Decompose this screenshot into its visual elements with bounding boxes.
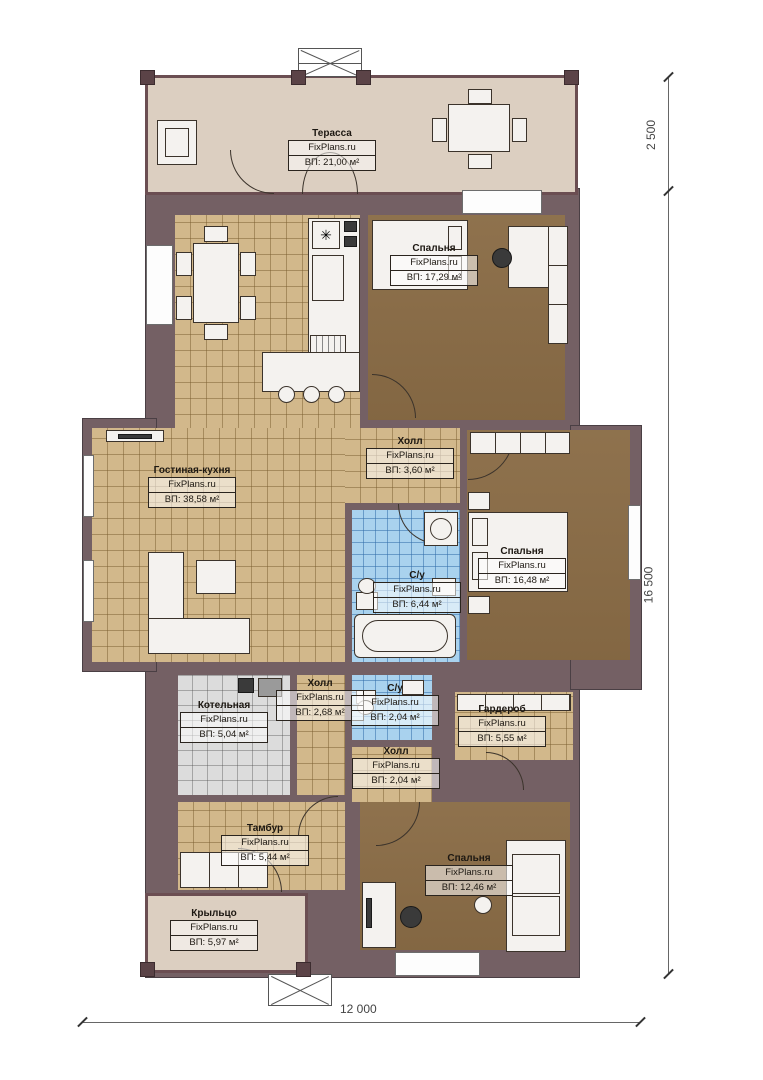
closet-row — [470, 432, 570, 454]
terrace-grill-inner — [165, 128, 189, 157]
terrace-post — [564, 70, 579, 85]
floor-plan: ✳ Терасса FixPl — [0, 0, 763, 1080]
dimension-label-house-width: 12 000 — [340, 1002, 377, 1016]
terrace-chair — [468, 89, 492, 104]
bar-stool — [278, 386, 295, 403]
room-label-porch: Крыльцо FixPlans.ru ВП: 5,97 м² — [170, 908, 258, 951]
side-table — [474, 896, 492, 914]
porch-steps-icon — [268, 974, 332, 1006]
dimension-label-terrace-depth: 2 500 — [644, 120, 658, 150]
washing-machine-door — [430, 518, 452, 540]
bar-stool — [303, 386, 320, 403]
boiler-unit — [238, 678, 254, 693]
terrace-chair — [512, 118, 527, 142]
window — [146, 245, 173, 325]
kitchen-sink — [312, 255, 344, 301]
kitchen-dining-table — [193, 243, 239, 323]
sofa-cushion — [512, 854, 560, 894]
kitchen-chair — [176, 296, 192, 320]
office-chair — [400, 906, 422, 928]
window — [628, 505, 641, 580]
window — [83, 560, 94, 622]
nightstand — [468, 596, 490, 614]
kitchen-chair — [176, 252, 192, 276]
terrace-post — [291, 70, 306, 85]
kitchen-appliance — [344, 221, 357, 232]
dimension-line-terrace — [668, 78, 669, 192]
window — [83, 455, 94, 517]
sofa-corner-horizontal — [148, 618, 250, 654]
room-label-bedroom-right: Спальня FixPlans.ru ВП: 16,48 м² — [478, 546, 566, 589]
dimension-line-width — [82, 1022, 640, 1023]
kitchen-chair — [204, 324, 228, 340]
room-label-tambour: Тамбур FixPlans.ru ВП: 5,44 м² — [221, 823, 309, 866]
room-label-wardrobe: Гардероб FixPlans.ru ВП: 5,55 м² — [458, 704, 546, 747]
pillow — [472, 518, 488, 546]
terrace-chair — [468, 154, 492, 169]
terrace-chair — [432, 118, 447, 142]
bar-stool — [328, 386, 345, 403]
room-label-boiler: Котельная FixPlans.ru ВП: 5,04 м² — [180, 700, 268, 743]
dimension-label-house-length: 16 500 — [641, 567, 655, 604]
office-chair — [492, 248, 512, 268]
room-label-living-kitchen: Гостиная-кухня FixPlans.ru ВП: 38,58 м² — [148, 465, 236, 508]
bathtub-basin — [362, 620, 448, 652]
terrace-post — [140, 70, 155, 85]
sofa-cushion — [512, 896, 560, 936]
desk — [508, 226, 550, 288]
porch-post — [140, 962, 155, 977]
nightstand — [468, 492, 490, 510]
kitchen-chair — [204, 226, 228, 242]
terrace-post — [356, 70, 371, 85]
terrace-dining-table — [448, 104, 510, 152]
room-label-bathroom-small: С/у FixPlans.ru ВП: 2,04 м² — [351, 683, 439, 726]
porch-post — [296, 962, 311, 977]
tv-icon — [118, 434, 152, 439]
entry-steps-icon — [298, 48, 362, 77]
room-label-hall-main: Холл FixPlans.ru ВП: 3,60 м² — [366, 436, 454, 479]
room-label-terrace: Терасса FixPlans.ru ВП: 21,00 м² — [288, 128, 376, 171]
window — [462, 190, 542, 214]
window — [395, 952, 480, 976]
kitchen-chair — [240, 296, 256, 320]
room-label-bedroom-top: Спальня FixPlans.ru ВП: 17,29 м² — [390, 243, 478, 286]
room-label-bathroom-main: С/у FixPlans.ru ВП: 6,44 м² — [373, 570, 461, 613]
kitchen-appliance — [344, 236, 357, 247]
stove-icon: ✳ — [312, 221, 340, 249]
dimension-line-length — [668, 192, 669, 975]
kitchen-chair — [240, 252, 256, 276]
room-label-bedroom-bottom: Спальня FixPlans.ru ВП: 12,46 м² — [425, 853, 513, 896]
room-label-hall-rear: Холл FixPlans.ru ВП: 2,04 м² — [352, 746, 440, 789]
monitor-icon — [366, 898, 372, 928]
wardrobe-cabinet — [548, 226, 568, 344]
coffee-table — [196, 560, 236, 594]
